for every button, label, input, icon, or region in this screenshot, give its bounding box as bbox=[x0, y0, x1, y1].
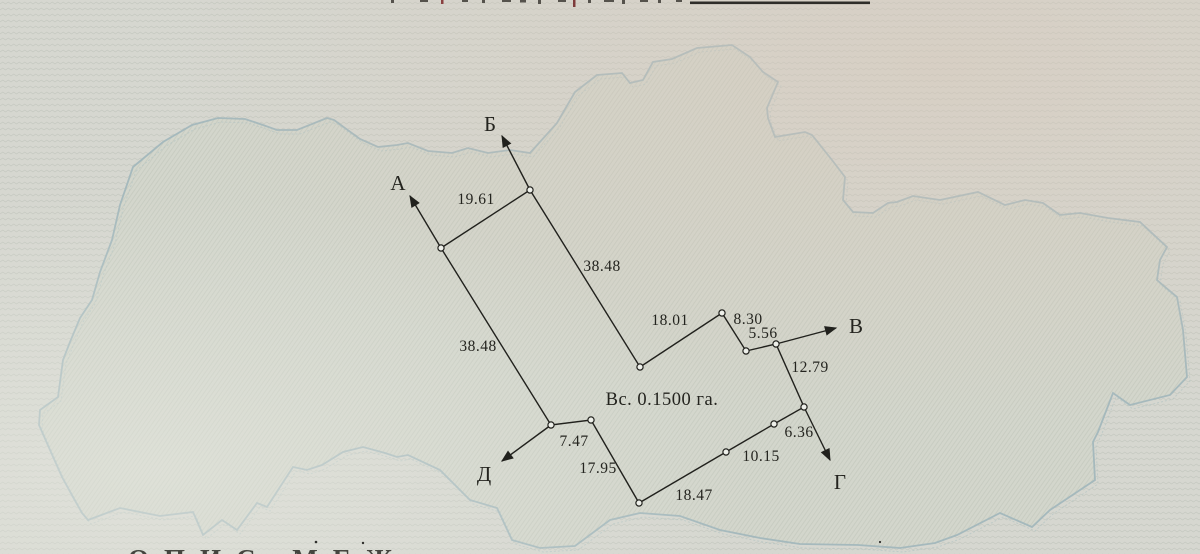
survey-point bbox=[801, 404, 807, 410]
dust-speck bbox=[315, 541, 318, 544]
survey-point bbox=[527, 187, 533, 193]
survey-point bbox=[548, 422, 554, 428]
edge-length-label: 10.15 bbox=[742, 448, 779, 465]
edge-length-label: 7.47 bbox=[559, 433, 588, 450]
survey-point bbox=[637, 364, 643, 370]
ray-label-d: Д bbox=[477, 462, 491, 486]
edge-length-label: 6.36 bbox=[784, 424, 813, 441]
area-label: Вс. 0.1500 га. bbox=[606, 390, 719, 410]
edge-length-label: 12.79 bbox=[791, 359, 828, 376]
ray-label-g: Г bbox=[834, 470, 846, 494]
cutoff-footer-text: ОПИС МЕЖ bbox=[128, 544, 407, 554]
ray-label-b: Б bbox=[484, 112, 496, 136]
edge-length-label: 18.47 bbox=[675, 487, 712, 504]
dust-speck bbox=[879, 541, 881, 543]
ray-label-a: А bbox=[390, 171, 406, 195]
plan-canvas: 19.61 38.48 18.01 8.30 5.56 12.79 6.36 1… bbox=[0, 0, 1200, 554]
edge-length-label: 38.48 bbox=[459, 338, 496, 355]
survey-point bbox=[588, 417, 594, 423]
survey-point bbox=[723, 449, 729, 455]
edge-length-label: 17.95 bbox=[579, 460, 616, 477]
top-underline-mark bbox=[690, 2, 870, 5]
survey-point bbox=[743, 348, 749, 354]
edge-length-label: 38.48 bbox=[583, 258, 620, 275]
edge-length-label: 5.56 bbox=[748, 325, 777, 342]
edge-length-label: 19.61 bbox=[457, 191, 494, 208]
survey-point bbox=[438, 245, 444, 251]
survey-point bbox=[771, 421, 777, 427]
survey-point bbox=[636, 500, 642, 506]
ray-label-v: В bbox=[849, 314, 863, 338]
survey-plan-scan: 19.61 38.48 18.01 8.30 5.56 12.79 6.36 1… bbox=[0, 0, 1200, 554]
survey-point bbox=[719, 310, 725, 316]
edge-length-label: 18.01 bbox=[651, 312, 688, 329]
